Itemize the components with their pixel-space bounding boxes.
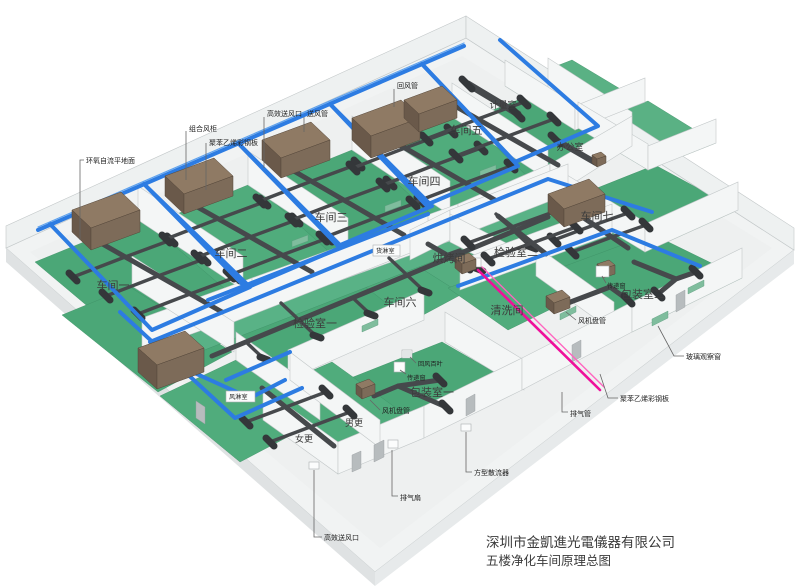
label-male-changing: 男更 [345,418,363,428]
label-panel-right: 聚苯乙烯彩钢板 [620,394,669,403]
label-office: 办公室 [556,141,583,152]
label-workshop5: 车间五 [450,123,483,137]
label-workshop1: 车间一 [97,278,130,292]
label-square-diffuser: 方型散流器 [474,468,509,477]
company-name: 深圳市金凱進光電儀器有限公司 [486,534,675,550]
label-exhaust-duct: 排气管 [570,409,591,418]
label-pass-window-left: 传递窗 [407,374,426,382]
label-cargo-shower: 货淋室 [376,247,395,255]
label-panel-top: 聚苯乙烯彩钢板 [209,138,258,147]
label-air-shower: 风淋室 [229,393,248,401]
label-workshop7: 车间七 [581,209,614,223]
pass-window-box-right [596,266,609,277]
label-supply-duct: 送风管 [307,109,328,118]
label-inspection1: 检验室一 [293,316,337,330]
label-hepa-bottom: 高效送风口 [324,533,359,542]
label-inspection2: 检验室二 [494,245,538,259]
pass-window-box-left [394,362,405,372]
label-fan-coil-bottom: 风机盘管 [382,406,410,415]
diagram-canvas: 车间一 车间二 车间三 车间四 车间五 车间六 车间七 检验室一 检验室二 烘烤… [0,0,800,587]
isometric-cleanroom-diagram: 车间一 车间二 车间三 车间四 车间五 车间六 车间七 检验室一 检验室二 烘烤… [0,0,800,587]
label-glass-window: 玻璃观察窗 [686,352,721,361]
label-combined-ahu: 组合风柜 [189,124,217,133]
label-epoxy-floor: 环氧自流平地面 [86,156,135,165]
label-female-changing: 女更 [295,433,313,444]
exhaust-fan-box [388,440,398,448]
label-packing2: 包装室二 [621,287,665,301]
label-hepa-top: 高效送风口 [267,109,302,118]
label-workshop3: 车间三 [315,210,348,224]
label-baking-room: 烘烤间 [433,251,466,265]
square-diffuser-box [461,424,471,431]
hepa-outlet-box [309,462,319,469]
diagram-title: 五楼净化车间原理总图 [486,553,611,568]
label-workshop4: 车间四 [408,174,441,188]
label-workshop6: 车间六 [384,295,417,309]
title-block: 深圳市金凱進光電儀器有限公司 五楼净化车间原理总图 [486,534,675,568]
label-packing1: 包装室一 [410,385,454,399]
label-cleaning-room: 清洗间 [491,304,524,317]
air-shower-tag: 风淋室 [226,391,255,402]
return-louver-grille [402,350,412,358]
label-workshop2: 车间二 [215,246,248,260]
cargo-shower-tag: 货淋室 [373,245,400,256]
label-fan-coil-right: 风机盘管 [578,316,606,325]
label-pass-window-right: 传递窗 [607,282,626,290]
label-return-louver: 回风百叶 [418,360,443,368]
label-metering-room: 计量室 [489,99,516,110]
label-exhaust-fan: 排气扇 [400,493,421,502]
label-return-duct: 回风管 [397,81,418,90]
